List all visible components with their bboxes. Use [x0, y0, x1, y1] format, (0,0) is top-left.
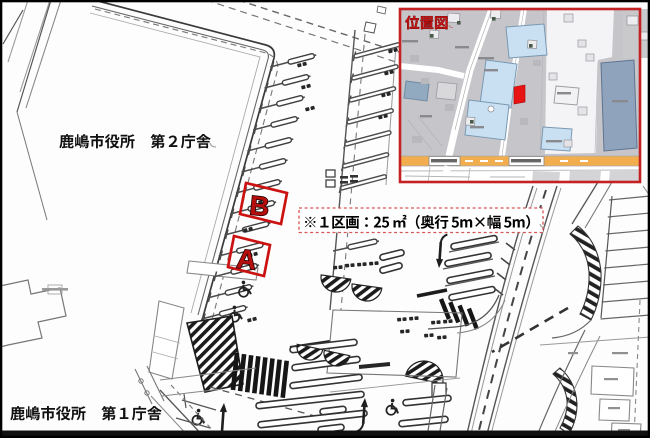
- svg-text:A: A: [235, 244, 258, 276]
- svg-text:B: B: [248, 190, 271, 222]
